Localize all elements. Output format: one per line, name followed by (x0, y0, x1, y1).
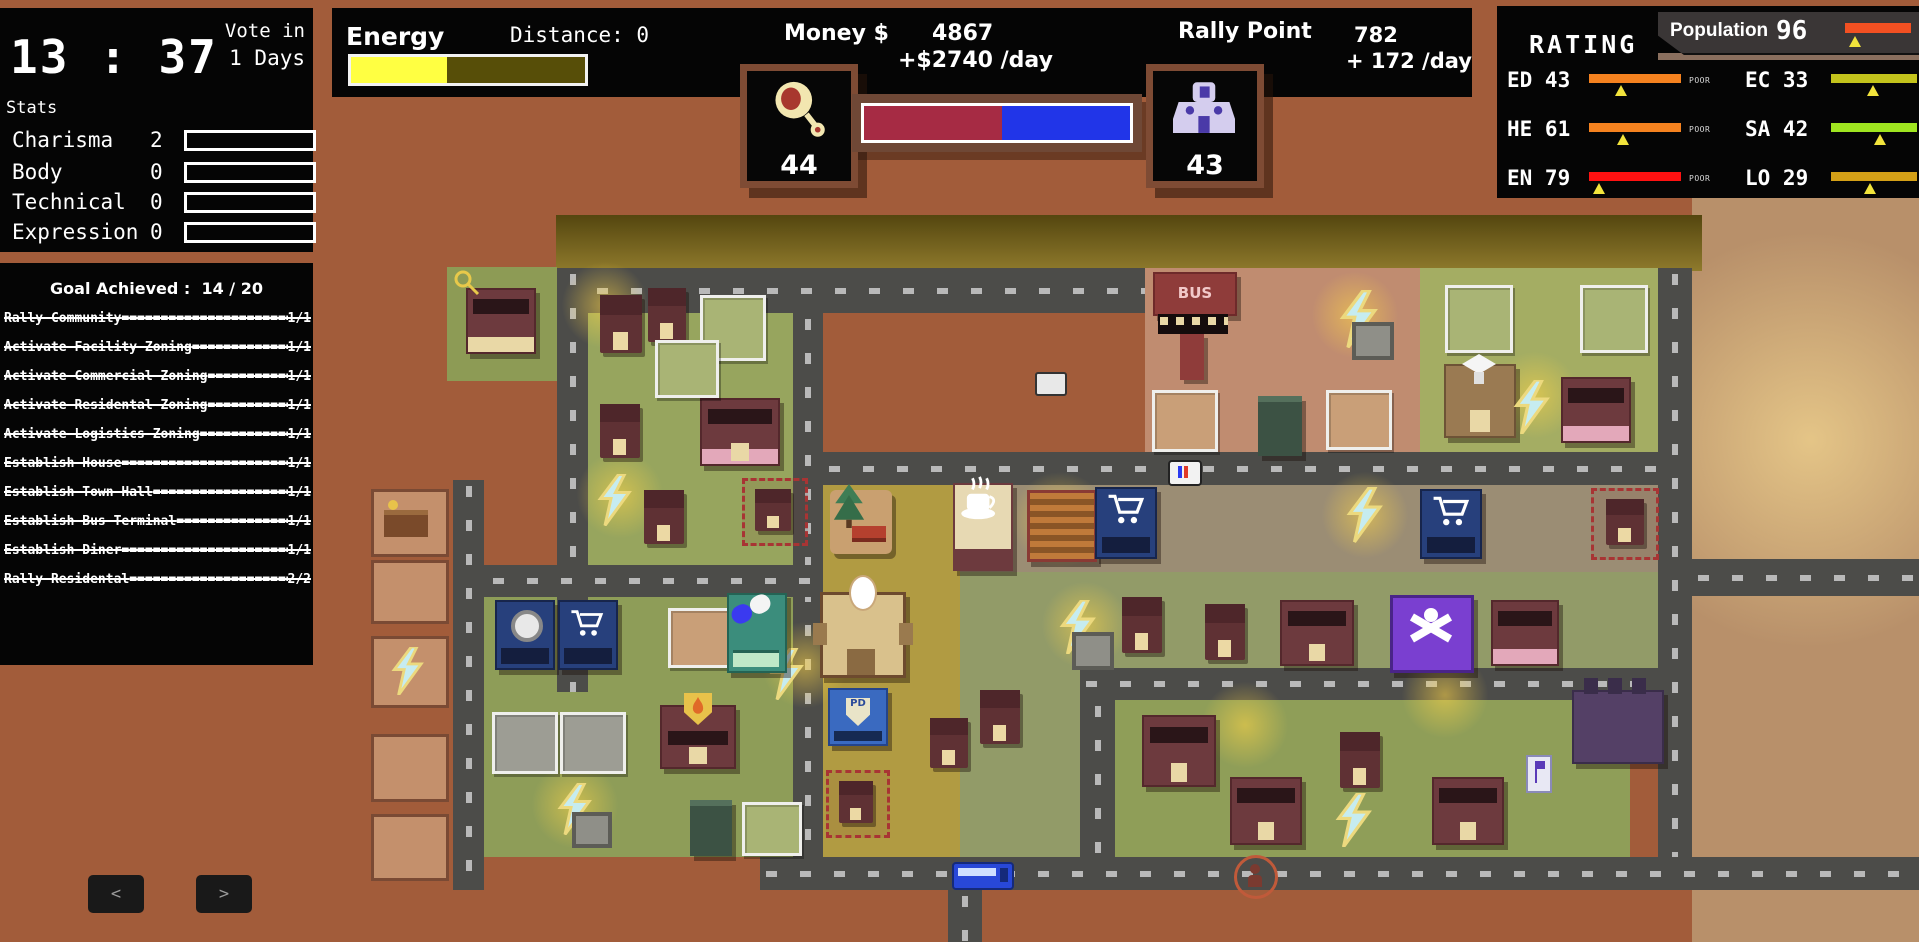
road-mid[interactable] (823, 452, 1658, 485)
map-top-band (556, 215, 1702, 271)
population-tab: Population 96 (1658, 12, 1919, 55)
park-tile[interactable] (830, 490, 892, 554)
team-left-count: 44 (747, 150, 851, 181)
road-top[interactable] (557, 268, 1145, 313)
shop-maroon[interactable] (1230, 777, 1302, 845)
money-label: Money $ (784, 21, 889, 46)
pharmacy-windows (733, 650, 779, 667)
stat-label: Expression (12, 220, 138, 244)
factory-chimney (1584, 678, 1598, 694)
shop-cart[interactable] (558, 600, 618, 670)
goal-item: Establish Bus Terminal==================… (4, 514, 311, 532)
goal-item: Rally Residental========================… (4, 572, 311, 590)
shop-ring[interactable] (495, 600, 555, 670)
bus-terminal-sign: BUS (1178, 284, 1212, 302)
cart-icon (1107, 493, 1145, 525)
population-value: 96 (1776, 16, 1807, 46)
rally-point-label: Rally Point (1178, 19, 1312, 44)
stat-row-technical: Technical 0 (12, 190, 308, 214)
rating-code: LO 29 (1745, 166, 1823, 190)
lightning-icon (390, 647, 424, 695)
goal-item: Establish House=========================… (4, 456, 311, 474)
stat-bar (184, 222, 316, 243)
rating-rows: ED 43 POOR EC 33 MARGINAL HE 61 POOR SA … (1507, 68, 1911, 202)
balance-bar-frame (852, 94, 1142, 152)
stat-label: Body (12, 160, 63, 184)
building-window (473, 299, 528, 314)
road-bottom-stub[interactable] (948, 890, 982, 942)
kiosk[interactable] (1258, 396, 1302, 456)
house (1606, 499, 1644, 545)
rating-marker (1593, 183, 1605, 194)
building-trim (468, 337, 534, 352)
police-car[interactable] (1168, 460, 1202, 486)
shop-maroon[interactable] (1432, 777, 1504, 845)
strip-tile-empty-2[interactable] (371, 734, 449, 802)
house[interactable] (980, 690, 1020, 744)
energy-bar (348, 54, 588, 86)
clock-stats-panel: 13 : 37 Vote in 1 Days Stats Charisma 2 … (0, 8, 313, 252)
bus[interactable] (952, 862, 1014, 890)
person-icon (1250, 864, 1260, 874)
lightning-icon (596, 474, 632, 526)
money-value: 4867 (932, 21, 993, 46)
road-br-left[interactable] (1080, 700, 1115, 857)
house[interactable] (1122, 597, 1162, 653)
flag-marker[interactable] (1526, 755, 1552, 793)
strip-tile-empty-3[interactable] (371, 814, 449, 881)
empty-plot[interactable] (492, 712, 558, 774)
house[interactable] (600, 404, 640, 458)
stat-value: 0 (150, 220, 163, 244)
market-stall[interactable] (1027, 490, 1097, 562)
bench-icon (852, 526, 886, 542)
strip-tile-power[interactable] (371, 636, 449, 708)
goal-item: Establish Diner=========================… (4, 543, 311, 561)
house[interactable] (600, 295, 642, 353)
goal-item: Activate Commercial Zoning==============… (4, 369, 311, 387)
clock: 13 : 37 (10, 30, 218, 84)
rally-point-rate: + 172 /day (1346, 49, 1472, 73)
tank-token-icon (1173, 79, 1235, 139)
shop-cart[interactable] (1095, 487, 1157, 559)
money-rate: +$2740 /day (898, 48, 1053, 73)
town-hall[interactable] (820, 592, 906, 678)
goal-item: Activate Logistics Zoning===============… (4, 427, 311, 445)
diner-base (955, 549, 1011, 569)
school[interactable] (1444, 364, 1516, 438)
police-shield-icon: PD (846, 698, 870, 726)
road-bottom[interactable] (760, 857, 1919, 890)
taxi-car[interactable] (1035, 372, 1067, 396)
empty-plot[interactable] (655, 340, 719, 398)
ring-icon (511, 610, 543, 642)
coffee-cup-icon (957, 475, 1005, 521)
rating-marker (1874, 134, 1886, 145)
energy-label: Energy (346, 22, 444, 51)
pine-tree-icon (832, 484, 866, 528)
stat-row-charisma: Charisma 2 (12, 128, 308, 152)
stats-title: Stats (6, 98, 57, 118)
rating-code: SA 42 (1745, 117, 1823, 141)
bus-terminal-platform (1158, 314, 1228, 334)
shop-cart[interactable] (1420, 489, 1482, 559)
rally-point-value: 782 (1354, 23, 1398, 47)
desk-icon (384, 510, 428, 537)
house[interactable] (648, 288, 686, 342)
empty-plot[interactable] (560, 712, 626, 774)
strip-tile-empty-1[interactable] (371, 560, 449, 624)
zoned-plot[interactable] (826, 770, 890, 838)
shop-maroon[interactable] (1491, 600, 1559, 666)
empty-plot[interactable] (668, 608, 730, 668)
stat-bar (184, 192, 316, 213)
house[interactable] (644, 490, 684, 544)
stat-value: 0 (150, 160, 163, 184)
rating-marker (1617, 134, 1629, 145)
magnifier-cursor-icon (452, 268, 482, 298)
rating-marker (1615, 85, 1627, 96)
team-right-count: 43 (1153, 150, 1257, 181)
lightning-icon (1345, 487, 1383, 543)
vote-countdown: 1 Days (229, 46, 305, 70)
road-far-left[interactable] (453, 480, 484, 890)
strip-tile-desk[interactable] (371, 489, 449, 557)
factory-chimney (1632, 678, 1646, 694)
rating-panel: RATING Population 96 ED 43 POOR EC 33 MA… (1497, 6, 1919, 198)
lightning-icon (1334, 793, 1372, 847)
rating-bar (1589, 172, 1681, 202)
factory[interactable] (1572, 690, 1664, 764)
zone-mid-low[interactable] (960, 668, 1080, 857)
population-label: Population (1670, 20, 1768, 42)
rating-status: POOR (1689, 125, 1737, 134)
stat-label: Technical (12, 190, 126, 214)
goal-item: Activate Residental Zoning==============… (4, 398, 311, 416)
goals-title: Goal Achieved : 14 / 20 (0, 279, 313, 298)
road-right-stub[interactable] (1692, 559, 1919, 596)
empty-plot[interactable] (1326, 390, 1392, 450)
goal-item: Establish Town Hall=====================… (4, 485, 311, 503)
rating-status: POOR (1689, 76, 1737, 85)
vote-label: Vote in (225, 20, 305, 42)
balance-bar (861, 103, 1133, 143)
population-marker (1849, 36, 1861, 47)
bus-windows (958, 868, 996, 876)
shop-maroon[interactable] (1280, 600, 1354, 666)
stat-value: 0 (150, 190, 163, 214)
egg-statue-icon (849, 575, 877, 611)
rating-code: HE 61 (1507, 117, 1581, 141)
road-right-edge[interactable] (1658, 268, 1692, 890)
empty-plot[interactable] (1580, 285, 1648, 353)
utility-pad (1352, 322, 1394, 360)
rating-bar (1589, 123, 1681, 153)
town-hall-wing (899, 623, 913, 645)
police-station[interactable]: PD (828, 688, 888, 746)
game-screen: PD (0, 0, 1919, 942)
kiosk[interactable] (690, 800, 732, 856)
goals-panel: Goal Achieved : 14 / 20 Rally Community=… (0, 263, 313, 665)
rating-status: POOR (1689, 174, 1737, 183)
school-door (1470, 410, 1490, 432)
population-bar (1845, 23, 1911, 33)
stat-label: Charisma (12, 128, 113, 152)
house[interactable] (930, 718, 968, 768)
goals-prev-button[interactable]: < (88, 875, 144, 913)
rating-bar (1831, 172, 1917, 202)
house[interactable] (1340, 732, 1380, 788)
distance-readout: Distance: 0 (510, 23, 649, 47)
apartment-building[interactable] (700, 398, 780, 466)
rating-bar (1589, 74, 1681, 104)
top-hud-bar: Energy Distance: 0 Money $ 4867 +$2740 /… (332, 8, 1472, 97)
bus-terminal[interactable]: BUS (1153, 272, 1237, 316)
house (755, 489, 791, 531)
stat-bar (184, 162, 316, 183)
police-window (834, 731, 882, 741)
utility-pad (572, 812, 612, 848)
factory-chimney (1608, 678, 1622, 694)
balance-red-segment (864, 106, 1002, 140)
goal-item: Rally Community=========================… (4, 311, 311, 329)
lightning-icon (1512, 380, 1550, 434)
rating-code: EN 79 (1507, 166, 1581, 190)
cart-icon (570, 608, 604, 638)
flame-icon (691, 697, 705, 715)
pill-icon (725, 589, 777, 629)
goal-item: Activate Facility Zoning================… (4, 340, 311, 358)
citizen-marker[interactable] (1234, 855, 1278, 899)
stat-bar (184, 130, 316, 151)
rating-code: ED 43 (1507, 68, 1581, 92)
pharmacy[interactable] (727, 593, 787, 673)
house (839, 781, 873, 823)
rating-code: EC 33 (1745, 68, 1823, 92)
rating-bar (1831, 74, 1917, 104)
rating-bar (1831, 123, 1917, 153)
desk-lamp-icon (388, 500, 398, 510)
stat-value: 2 (150, 128, 163, 152)
diner[interactable] (953, 483, 1013, 571)
fire-station[interactable] (660, 705, 736, 769)
empty-plot[interactable] (742, 802, 802, 856)
shop-maroon[interactable] (1561, 377, 1631, 443)
rating-marker (1867, 85, 1879, 96)
rating-title: RATING (1529, 30, 1637, 59)
energy-fill (351, 57, 447, 83)
team-left-indicator[interactable]: 44 (740, 64, 858, 188)
balance-blue-segment (1002, 106, 1130, 140)
empty-plot[interactable] (1152, 390, 1218, 452)
empty-plot[interactable] (1445, 285, 1513, 353)
zoned-plot[interactable] (742, 478, 808, 546)
town-hall-wing (813, 623, 827, 645)
goals-next-button[interactable]: > (196, 875, 252, 913)
team-right-indicator[interactable]: 43 (1146, 64, 1264, 188)
zoned-plot[interactable] (1591, 488, 1659, 560)
utility-pad (1072, 632, 1114, 670)
bus-terminal-pillar (1180, 334, 1204, 380)
cart-icon (1432, 495, 1470, 527)
house[interactable] (1205, 604, 1245, 660)
stat-row-body: Body 0 (12, 160, 308, 184)
shop-maroon[interactable] (1142, 715, 1216, 787)
stat-row-expression: Expression 0 (12, 220, 308, 244)
magnifier-token-icon (769, 79, 827, 141)
rating-marker (1864, 183, 1876, 194)
town-hall-door (847, 649, 875, 675)
arcade[interactable] (1390, 595, 1474, 673)
